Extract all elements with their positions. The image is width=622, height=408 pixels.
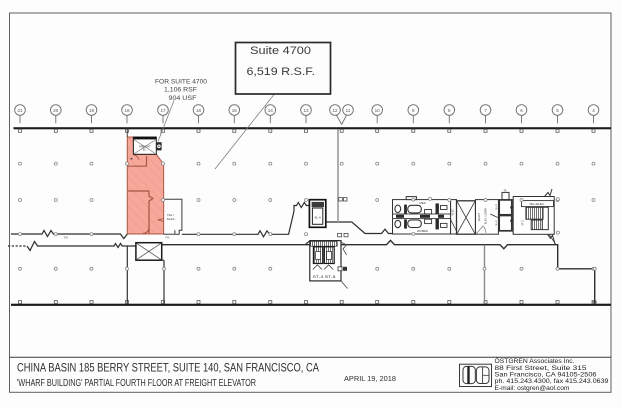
svg-text:21: 21 [17, 108, 23, 113]
svg-text:19: 19 [89, 108, 95, 113]
svg-text:FM: FM [64, 236, 68, 240]
svg-text:20: 20 [53, 108, 59, 113]
svg-text:EL-2: EL-2 [495, 220, 498, 226]
svg-text:EL.: EL. [143, 147, 147, 151]
svg-text:E-mail: ostgren@aol.com: E-mail: ostgren@aol.com [495, 385, 570, 392]
svg-text:ST-4 ST-5: ST-4 ST-5 [313, 274, 337, 279]
svg-text:16: 16 [196, 108, 202, 113]
svg-text:13: 13 [303, 108, 309, 113]
svg-text:TK: TK [503, 190, 506, 193]
svg-text:TEL./ELEC.: TEL./ELEC. [529, 202, 545, 206]
svg-text:FOR SUITE 4700: FOR SUITE 4700 [155, 79, 207, 86]
svg-text:ELEC: ELEC [451, 208, 455, 215]
svg-text:'WHARF BUILDING' PARTIAL FOURT: 'WHARF BUILDING' PARTIAL FOURTH FLOOR AT… [17, 378, 256, 389]
svg-text:904 USF: 904 USF [169, 95, 197, 102]
svg-text:ELEV. LOBBY: ELEV. LOBBY [484, 207, 488, 224]
svg-text:7: 7 [484, 108, 487, 113]
svg-text:Suite 4700: Suite 4700 [250, 45, 311, 57]
svg-text:10: 10 [375, 108, 381, 113]
svg-text:CHINA BASIN 185 BERRY STREET,: CHINA BASIN 185 BERRY STREET, SUITE 140,… [17, 361, 319, 375]
svg-text:17: 17 [160, 108, 166, 113]
svg-text:15: 15 [232, 108, 238, 113]
svg-text:WOMEN: WOMEN [417, 229, 428, 233]
svg-text:SHAFT: SHAFT [477, 212, 481, 221]
svg-text:14: 14 [268, 108, 274, 113]
svg-text:EL-4: EL-4 [315, 215, 321, 219]
svg-text:ST-3: ST-3 [522, 220, 525, 226]
svg-text:18: 18 [124, 108, 130, 113]
svg-text:11: 11 [346, 108, 351, 113]
svg-text:FM: FM [166, 236, 170, 240]
svg-text:APRIL 19, 2018: APRIL 19, 2018 [344, 374, 396, 383]
svg-text:EL-3: EL-3 [495, 204, 498, 210]
svg-text:8: 8 [448, 108, 451, 113]
svg-text:4: 4 [592, 108, 595, 113]
svg-text:1,106 RSF: 1,106 RSF [164, 87, 197, 94]
svg-text:ELEC.: ELEC. [167, 217, 176, 221]
svg-text:MEN: MEN [420, 201, 426, 205]
svg-text:5: 5 [556, 108, 559, 113]
svg-text:6: 6 [520, 108, 523, 113]
svg-text:9: 9 [412, 108, 415, 113]
svg-text:12: 12 [332, 108, 338, 113]
svg-text:6,519 R.S.F.: 6,519 R.S.F. [247, 66, 316, 78]
